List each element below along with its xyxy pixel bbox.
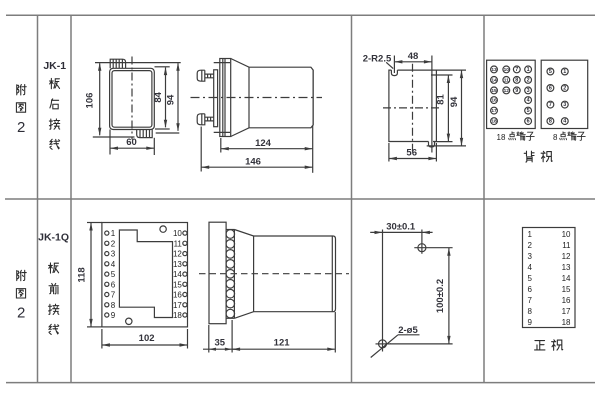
- svg-text:60: 60: [126, 137, 137, 148]
- svg-text:10: 10: [562, 230, 571, 239]
- svg-text:3: 3: [563, 102, 566, 108]
- svg-text:2: 2: [563, 86, 566, 92]
- svg-text:3: 3: [527, 88, 530, 94]
- svg-text:6: 6: [528, 285, 533, 294]
- svg-text:2: 2: [527, 78, 530, 84]
- svg-text:1: 1: [528, 230, 533, 239]
- svg-text:18: 18: [491, 119, 497, 125]
- svg-text:8: 8: [515, 78, 518, 84]
- svg-text:8: 8: [528, 307, 533, 316]
- svg-text:17: 17: [173, 301, 182, 310]
- svg-text:JK-1: JK-1: [43, 60, 66, 72]
- svg-text:124: 124: [255, 138, 272, 149]
- svg-text:16: 16: [173, 291, 182, 300]
- svg-text:8: 8: [553, 133, 558, 142]
- svg-text:94: 94: [165, 94, 176, 105]
- svg-text:12: 12: [173, 250, 182, 259]
- svg-text:18: 18: [562, 318, 571, 327]
- svg-text:1: 1: [111, 229, 116, 238]
- svg-text:18: 18: [173, 311, 182, 320]
- svg-text:14: 14: [491, 78, 497, 84]
- svg-text:3: 3: [111, 250, 116, 259]
- svg-text:35: 35: [215, 338, 226, 349]
- svg-text:18: 18: [497, 133, 506, 142]
- svg-text:121: 121: [274, 338, 291, 349]
- svg-text:4: 4: [111, 260, 116, 269]
- svg-text:146: 146: [245, 156, 261, 167]
- svg-text:5: 5: [528, 274, 533, 283]
- svg-text:12: 12: [562, 252, 571, 261]
- svg-text:15: 15: [562, 285, 571, 294]
- svg-text:30±0.1: 30±0.1: [386, 221, 416, 232]
- svg-text:8: 8: [549, 119, 552, 125]
- svg-text:11: 11: [562, 241, 571, 250]
- svg-text:11: 11: [504, 78, 509, 84]
- svg-text:16: 16: [491, 98, 497, 104]
- svg-text:1: 1: [563, 69, 566, 75]
- svg-text:12: 12: [504, 88, 510, 94]
- svg-text:JK-1Q: JK-1Q: [38, 232, 69, 244]
- svg-text:1: 1: [527, 67, 530, 73]
- svg-text:10: 10: [173, 229, 182, 238]
- svg-text:56: 56: [406, 147, 417, 158]
- svg-text:6: 6: [111, 280, 116, 289]
- svg-text:5: 5: [111, 270, 116, 279]
- svg-text:16: 16: [562, 296, 571, 305]
- svg-text:102: 102: [139, 333, 155, 344]
- svg-text:2: 2: [17, 305, 25, 322]
- svg-text:48: 48: [408, 51, 419, 62]
- svg-text:5: 5: [527, 108, 530, 114]
- svg-text:3: 3: [528, 252, 533, 261]
- svg-text:2: 2: [111, 239, 116, 248]
- svg-text:4: 4: [563, 119, 566, 125]
- svg-text:5: 5: [549, 69, 552, 75]
- svg-text:2: 2: [17, 119, 25, 136]
- svg-text:11: 11: [174, 239, 183, 248]
- svg-text:15: 15: [173, 280, 182, 289]
- svg-text:106: 106: [85, 93, 96, 109]
- svg-text:118: 118: [77, 267, 88, 282]
- svg-text:6: 6: [549, 86, 552, 92]
- svg-text:7: 7: [515, 67, 518, 73]
- svg-text:15: 15: [491, 88, 497, 94]
- svg-text:13: 13: [173, 260, 182, 269]
- svg-text:6: 6: [527, 119, 530, 125]
- svg-text:9: 9: [515, 88, 518, 94]
- svg-text:94: 94: [449, 96, 460, 107]
- svg-text:2: 2: [528, 241, 533, 250]
- svg-text:4: 4: [528, 263, 533, 272]
- svg-text:84: 84: [153, 91, 164, 102]
- svg-text:13: 13: [562, 263, 571, 272]
- svg-text:9: 9: [111, 311, 116, 320]
- svg-text:8: 8: [111, 301, 116, 310]
- svg-text:4: 4: [527, 98, 530, 104]
- svg-text:14: 14: [173, 270, 182, 279]
- svg-text:10: 10: [504, 67, 510, 73]
- svg-text:100±0.2: 100±0.2: [435, 279, 446, 313]
- svg-text:7: 7: [111, 291, 116, 300]
- svg-text:14: 14: [562, 274, 571, 283]
- svg-text:17: 17: [562, 307, 571, 316]
- svg-text:81: 81: [436, 94, 447, 105]
- svg-text:17: 17: [491, 108, 497, 114]
- svg-text:7: 7: [528, 296, 533, 305]
- svg-text:7: 7: [549, 102, 552, 108]
- svg-text:13: 13: [491, 67, 497, 73]
- svg-text:9: 9: [528, 318, 533, 327]
